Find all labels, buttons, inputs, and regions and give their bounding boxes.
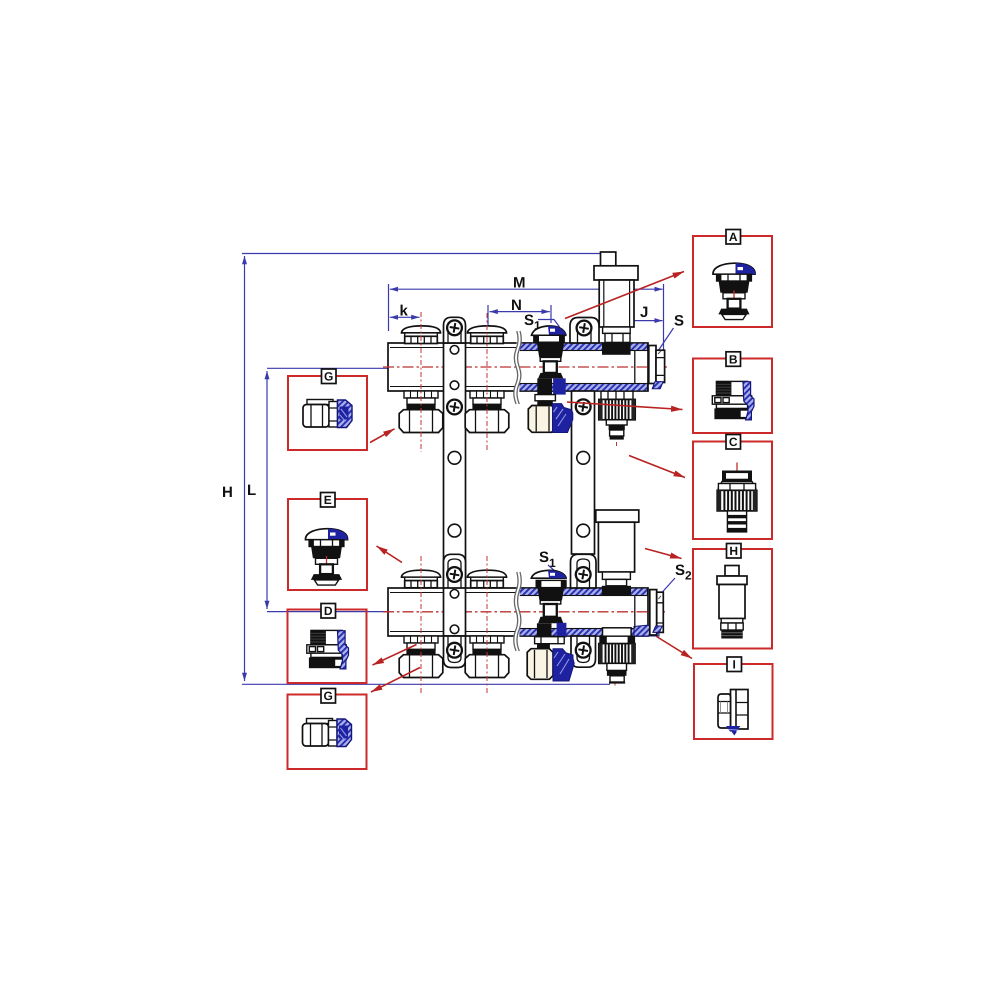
svg-text:H: H bbox=[729, 544, 738, 558]
svg-text:S: S bbox=[524, 312, 534, 329]
svg-text:B: B bbox=[729, 352, 738, 366]
svg-text:E: E bbox=[324, 493, 332, 507]
svg-text:1: 1 bbox=[549, 556, 556, 570]
svg-text:G: G bbox=[324, 689, 333, 703]
svg-text:I: I bbox=[733, 658, 736, 672]
svg-text:L: L bbox=[247, 482, 256, 499]
svg-text:G: G bbox=[324, 370, 333, 384]
svg-text:D: D bbox=[324, 604, 333, 618]
svg-text:J: J bbox=[640, 304, 648, 321]
svg-text:M: M bbox=[513, 275, 526, 292]
svg-text:N: N bbox=[511, 297, 522, 314]
svg-text:S: S bbox=[539, 549, 549, 566]
svg-text:k: k bbox=[400, 303, 409, 320]
svg-text:H: H bbox=[222, 484, 233, 501]
svg-text:A: A bbox=[729, 230, 738, 244]
svg-text:S: S bbox=[674, 313, 684, 330]
svg-text:2: 2 bbox=[685, 569, 692, 583]
svg-text:S: S bbox=[675, 562, 685, 579]
svg-text:C: C bbox=[729, 435, 738, 449]
